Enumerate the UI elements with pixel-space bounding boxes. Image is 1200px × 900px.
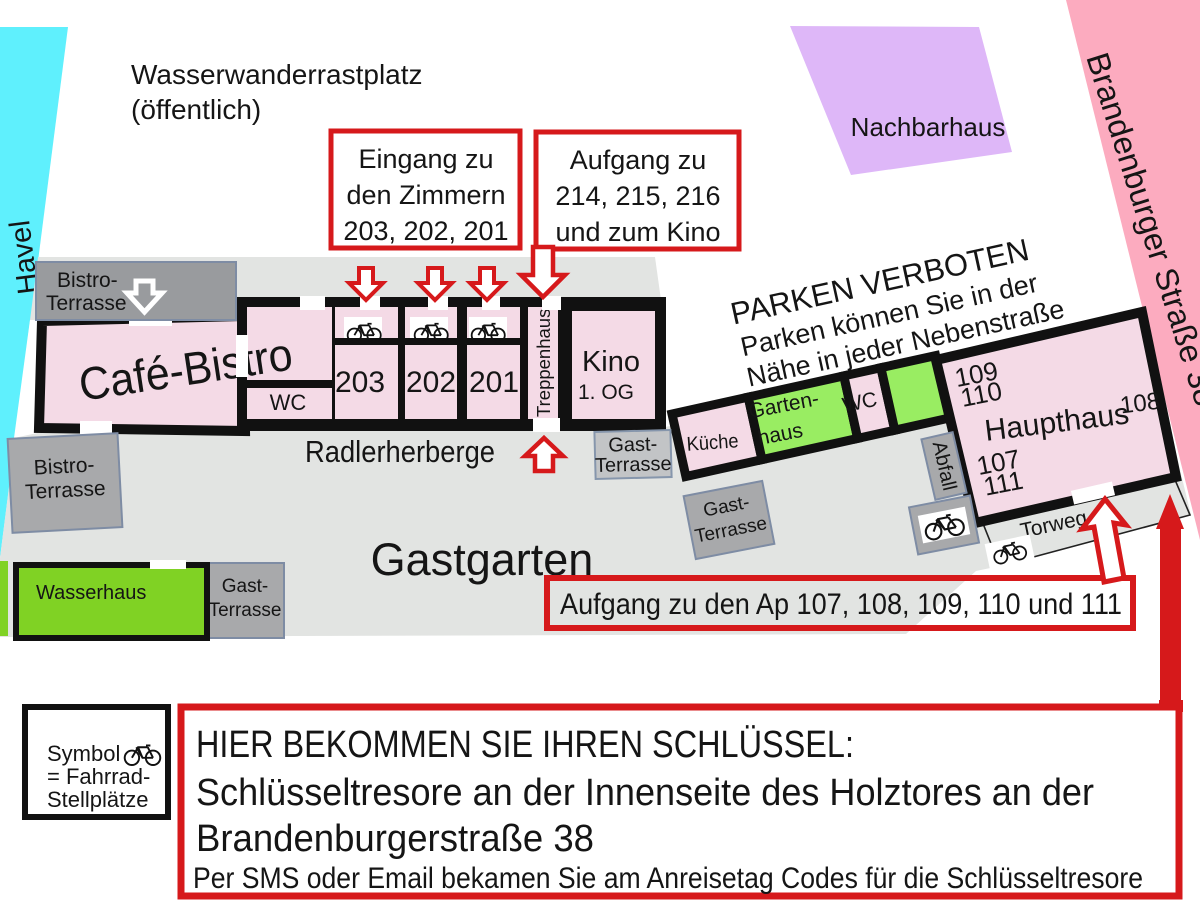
svg-text:Terrasse: Terrasse xyxy=(25,477,107,504)
svg-text:Radlerherberge: Radlerherberge xyxy=(305,434,495,469)
svg-text:Terrasse: Terrasse xyxy=(46,292,127,315)
svg-text:WC: WC xyxy=(270,390,307,415)
svg-text:203: 203 xyxy=(335,366,385,399)
svg-text:den Zimmern: den Zimmern xyxy=(346,180,505,210)
svg-text:214, 215, 216: 214, 215, 216 xyxy=(555,181,720,211)
svg-text:Bistro-: Bistro- xyxy=(33,453,95,479)
svg-text:Terrasse: Terrasse xyxy=(209,600,282,621)
svg-text:Aufgang zu: Aufgang zu xyxy=(570,145,707,175)
svg-text:Terrasse: Terrasse xyxy=(595,453,672,477)
svg-text:201: 201 xyxy=(469,366,519,399)
svg-text:Nachbarhaus: Nachbarhaus xyxy=(851,112,1006,142)
svg-text:Treppenhaus: Treppenhaus xyxy=(533,309,554,417)
svg-text:Per SMS oder Email bekamen Sie: Per SMS oder Email bekamen Sie am Anreis… xyxy=(193,862,1143,895)
svg-text:202: 202 xyxy=(406,366,456,399)
svg-text:= Fahrrad-: = Fahrrad- xyxy=(47,764,150,789)
svg-text:Wasserhaus: Wasserhaus xyxy=(36,582,146,604)
svg-text:Stellplätze: Stellplätze xyxy=(47,787,149,812)
svg-text:Kino: Kino xyxy=(582,346,640,378)
svg-text:1. OG: 1. OG xyxy=(578,381,634,404)
svg-text:Küche: Küche xyxy=(686,430,739,456)
svg-text:Symbol: Symbol xyxy=(47,741,120,766)
svg-text:und zum Kino: und zum Kino xyxy=(555,217,720,247)
svg-text:Gast-: Gast- xyxy=(222,576,268,597)
svg-text:203, 202, 201: 203, 202, 201 xyxy=(343,216,508,246)
svg-text:(öffentlich): (öffentlich) xyxy=(131,94,261,125)
svg-text:Aufgang zu den Ap 107, 108, 10: Aufgang zu den Ap 107, 108, 109, 110 und… xyxy=(560,588,1122,621)
svg-text:Schlüsseltresore an der Innens: Schlüsseltresore an der Innenseite des H… xyxy=(196,772,1094,814)
svg-text:Wasserwanderrastplatz: Wasserwanderrastplatz xyxy=(131,59,423,90)
svg-text:HIER BEKOMMEN SIE IHREN SCHLÜS: HIER BEKOMMEN SIE IHREN SCHLÜSSEL: xyxy=(196,724,854,766)
svg-text:Eingang zu: Eingang zu xyxy=(358,144,493,174)
svg-text:Bistro-: Bistro- xyxy=(57,269,118,292)
svg-text:Brandenburgerstraße 38: Brandenburgerstraße 38 xyxy=(196,818,594,860)
svg-text:108: 108 xyxy=(1119,388,1162,420)
